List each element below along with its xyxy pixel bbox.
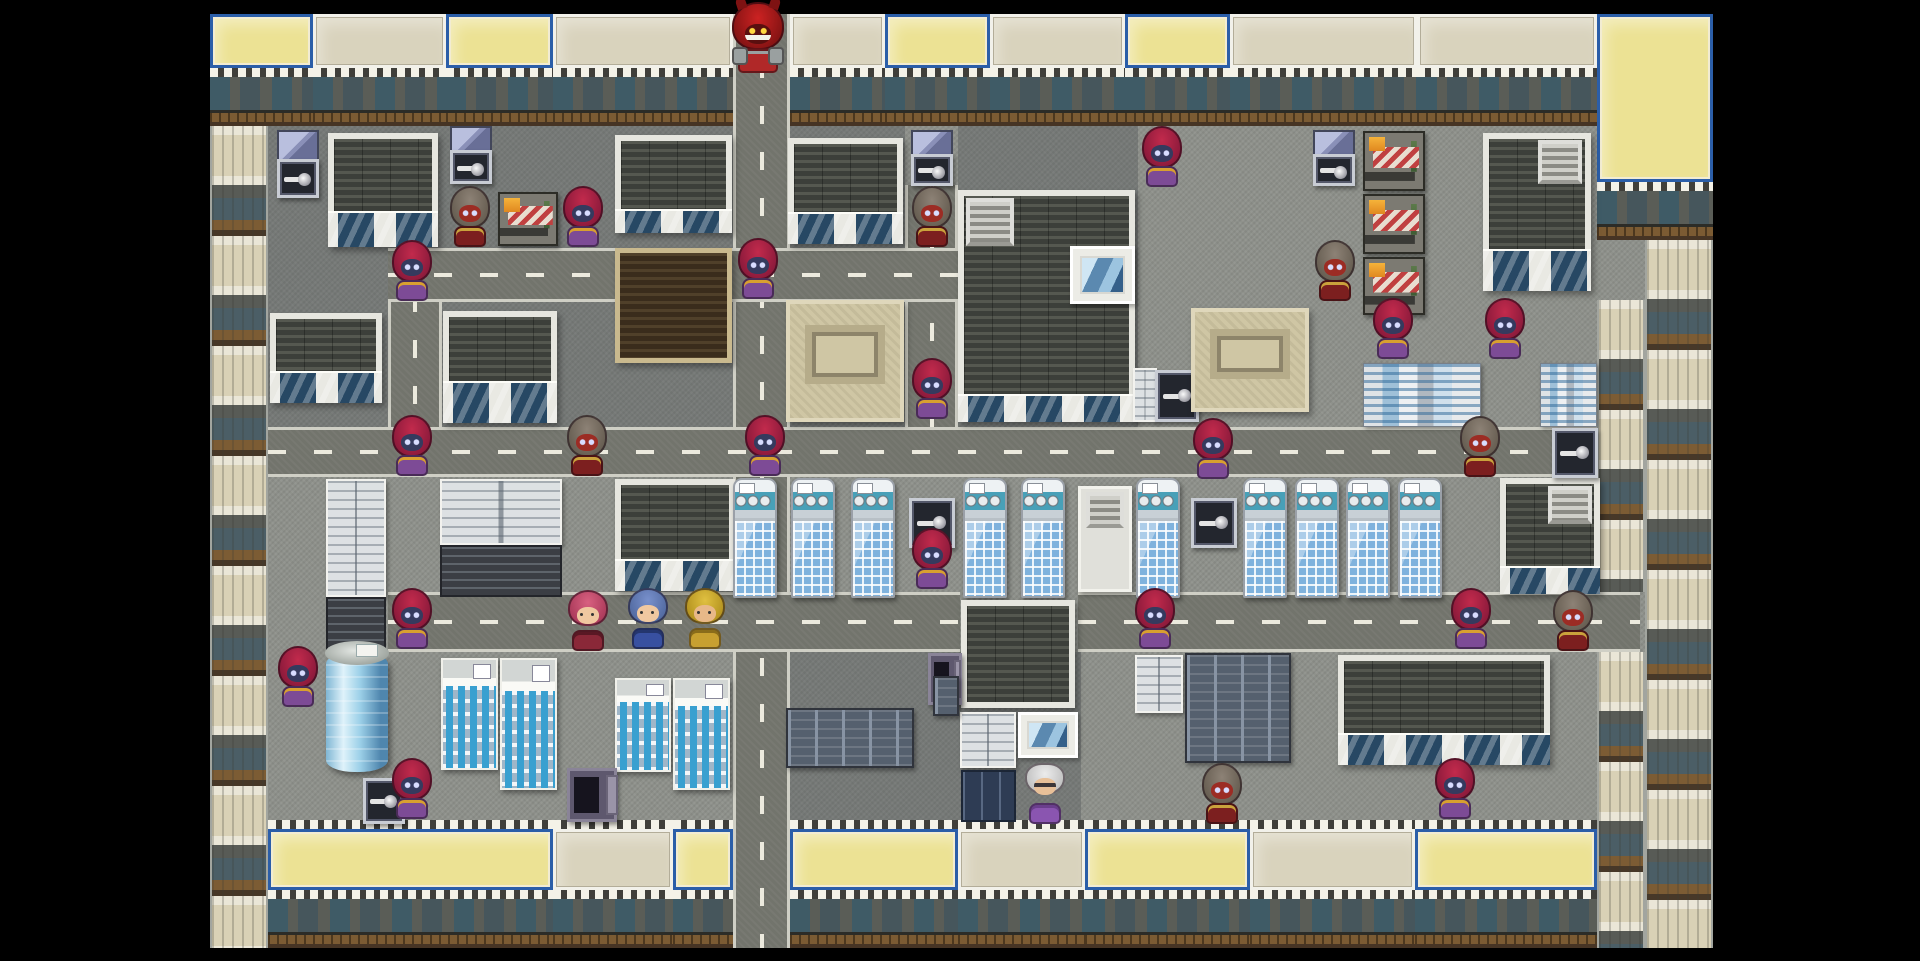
- building-facade-column: [210, 126, 268, 948]
- sprite-body: [1455, 628, 1487, 649]
- sprite-body: [567, 226, 599, 247]
- sprite-face: [401, 607, 423, 624]
- building-storefront: [1597, 14, 1713, 240]
- building-storefront: [313, 14, 446, 126]
- prop-lockers: [1185, 653, 1291, 763]
- sprite-body: [1319, 280, 1351, 301]
- sprite-face: [921, 377, 943, 394]
- npc-red-hood[interactable]: [390, 240, 434, 302]
- sprite-body: [632, 628, 664, 649]
- prop-rack: [1021, 478, 1065, 598]
- sprite-face: [1144, 607, 1166, 624]
- window-band: [958, 394, 1135, 422]
- building-facade-column: [1645, 240, 1713, 948]
- npc-red-hood[interactable]: [561, 186, 605, 248]
- sprite-body: [916, 226, 948, 247]
- window-band: [615, 559, 735, 591]
- prop-rack: [1243, 478, 1287, 598]
- sprite-body: [454, 226, 486, 247]
- sprite-face: [1211, 782, 1233, 799]
- sprite-body: [916, 568, 948, 589]
- sprite-body: [396, 280, 428, 301]
- prop-rack: [851, 478, 895, 598]
- npc-red-hood[interactable]: [390, 758, 434, 820]
- building-storefront: [958, 820, 1085, 948]
- prop-stall: [1363, 194, 1425, 254]
- prop-safeglass: [450, 126, 492, 184]
- building-storefront: [885, 14, 990, 126]
- prop-safe: [1191, 498, 1237, 548]
- building-facade-column: [1597, 300, 1645, 592]
- sprite-face: [754, 434, 776, 451]
- npc-red-hood[interactable]: [1371, 298, 1415, 360]
- prop-rack: [791, 478, 835, 598]
- sprite-face: [745, 24, 771, 44]
- building-storefront: [210, 14, 313, 126]
- prop-safeglass: [277, 130, 319, 198]
- prop-roofdark: [615, 135, 732, 233]
- sprite-face: [1460, 607, 1482, 624]
- npc-hero-pink[interactable]: [566, 590, 610, 652]
- sprite-body: [749, 455, 781, 476]
- prop-roofdark: [961, 600, 1075, 708]
- sprite-face: [572, 205, 594, 222]
- prop-rack: [1346, 478, 1390, 598]
- road-dash-line: [388, 620, 960, 624]
- sprite-body: [572, 630, 604, 651]
- prop-monument: [1191, 308, 1309, 412]
- sprite-face: [747, 257, 769, 274]
- prop-cablight: [440, 479, 562, 545]
- npc-red-hood[interactable]: [1140, 126, 1184, 188]
- prop-safeglass: [911, 130, 953, 186]
- prop-minitower: [441, 658, 498, 770]
- prop-windowinset: [1070, 246, 1135, 304]
- sprite-body: [282, 686, 314, 707]
- building-storefront: [1417, 14, 1597, 126]
- building-storefront: [1230, 14, 1417, 126]
- prop-windowinset: [1018, 712, 1078, 758]
- prop-rack: [1295, 478, 1339, 598]
- sprite-face: [1034, 778, 1056, 795]
- sprite-body: [396, 628, 428, 649]
- npc-hero-blue[interactable]: [626, 588, 670, 650]
- building-storefront: [553, 14, 733, 126]
- sprite-face: [287, 665, 309, 682]
- prop-cabdark: [440, 545, 562, 597]
- prop-roofdark: [615, 479, 735, 591]
- sprite-face: [1151, 145, 1173, 162]
- prop-vent: [1548, 486, 1592, 524]
- sprite-face: [1324, 259, 1346, 276]
- prop-roofdark: [270, 313, 382, 403]
- prop-roofdark: [443, 311, 557, 423]
- prop-roofdark: [1338, 655, 1550, 765]
- sprite-face: [401, 777, 423, 794]
- prop-stall: [1363, 131, 1425, 191]
- prop-cylinder: [326, 652, 388, 772]
- building-storefront: [446, 14, 553, 126]
- sprite-face: [459, 205, 481, 222]
- prop-rack: [733, 478, 777, 598]
- sprite-body: [1489, 338, 1521, 359]
- building-storefront: [1415, 820, 1597, 948]
- sprite-face: [1444, 777, 1466, 794]
- prop-cablight: [960, 712, 1016, 768]
- sprite-body: [1377, 338, 1409, 359]
- sprite-face: [921, 205, 943, 222]
- prop-safeopen: [567, 768, 617, 822]
- prop-vent: [1086, 492, 1124, 528]
- sprite-body: [1206, 803, 1238, 824]
- sprite-body: [1146, 166, 1178, 187]
- sprite-body: [1439, 798, 1471, 819]
- npc-masked[interactable]: [1458, 416, 1502, 478]
- prop-safeglass: [1313, 130, 1355, 186]
- building-facade-column: [1597, 652, 1645, 948]
- npc-red-hood[interactable]: [910, 528, 954, 590]
- npc-masked[interactable]: [910, 186, 954, 248]
- npc-boss-demon[interactable]: [730, 2, 786, 74]
- sprite-body: [742, 278, 774, 299]
- prop-doorsdark: [961, 770, 1016, 822]
- sprite-face: [1202, 437, 1224, 454]
- npc-red-hood[interactable]: [390, 415, 434, 477]
- prop-cablight: [1133, 368, 1157, 422]
- npc-red-hood[interactable]: [1191, 418, 1235, 480]
- building-storefront: [790, 820, 958, 948]
- prop-cablight: [326, 479, 386, 597]
- window-band: [270, 371, 382, 403]
- sprite-body: [1139, 628, 1171, 649]
- prop-monument: [786, 300, 904, 422]
- npc-masked[interactable]: [1200, 763, 1244, 825]
- building-storefront: [673, 820, 733, 948]
- npc-red-hood[interactable]: [1133, 588, 1177, 650]
- prop-roofdark: [328, 133, 438, 247]
- window-band: [1483, 249, 1591, 291]
- prop-minitower: [500, 658, 557, 790]
- sprite-face: [401, 434, 423, 451]
- sprite-face: [401, 259, 423, 276]
- npc-red-hood[interactable]: [276, 646, 320, 708]
- prop-rack: [1398, 478, 1442, 598]
- sprite-face: [576, 434, 598, 451]
- sprite-body: [1197, 458, 1229, 479]
- npc-red-hood[interactable]: [1449, 588, 1493, 650]
- npc-masked[interactable]: [448, 186, 492, 248]
- prop-stall: [498, 192, 558, 246]
- npc-red-hood[interactable]: [1483, 298, 1527, 360]
- window-band: [615, 209, 732, 233]
- building-storefront: [268, 820, 553, 948]
- npc-red-hood[interactable]: [743, 415, 787, 477]
- sprite-face: [1562, 609, 1584, 626]
- npc-old-man[interactable]: [1023, 763, 1067, 825]
- prop-safe: [1552, 428, 1598, 478]
- npc-hero-gold[interactable]: [683, 588, 727, 650]
- npc-red-hood[interactable]: [390, 588, 434, 650]
- prop-rack: [1136, 478, 1180, 598]
- building-storefront: [1125, 14, 1230, 126]
- prop-cablight: [1135, 655, 1183, 713]
- prop-minitower: [615, 678, 671, 772]
- road: [388, 592, 960, 652]
- prop-roofbrown: [615, 248, 732, 363]
- sprite-body: [1557, 630, 1589, 651]
- window-band: [443, 381, 557, 423]
- prop-rack: [963, 478, 1007, 598]
- sprite-body: [689, 628, 721, 649]
- sprite-body: [396, 455, 428, 476]
- building-storefront: [1085, 820, 1250, 948]
- sprite-face: [637, 605, 659, 622]
- npc-red-hood[interactable]: [910, 358, 954, 420]
- prop-minicity: [1540, 363, 1597, 427]
- npc-masked[interactable]: [1313, 240, 1357, 302]
- npc-red-hood[interactable]: [736, 238, 780, 300]
- sprite-body: [571, 455, 603, 476]
- prop-vent: [966, 198, 1014, 246]
- building-storefront: [553, 820, 673, 948]
- npc-red-hood[interactable]: [1433, 758, 1477, 820]
- building-storefront: [1250, 820, 1415, 948]
- sprite-face: [921, 547, 943, 564]
- game-screen[interactable]: [0, 0, 1920, 961]
- sprite-body: [396, 798, 428, 819]
- npc-masked[interactable]: [1551, 590, 1595, 652]
- sprite-face: [1382, 317, 1404, 334]
- sprite-face: [1494, 317, 1516, 334]
- sprite-face: [577, 607, 599, 624]
- prop-roofdark: [788, 138, 903, 244]
- sprite-body: [916, 398, 948, 419]
- prop-lockers: [786, 708, 914, 768]
- prop-vent: [1538, 140, 1582, 184]
- building-storefront: [990, 14, 1125, 126]
- prop-lockers: [933, 676, 959, 716]
- sprite-face: [694, 605, 716, 622]
- sprite-face: [1469, 435, 1491, 452]
- sprite-body: [738, 49, 778, 73]
- building-storefront: [790, 14, 885, 126]
- window-band: [788, 212, 903, 244]
- sprite-body: [1029, 803, 1061, 824]
- sprite-body: [1464, 456, 1496, 477]
- npc-masked[interactable]: [565, 415, 609, 477]
- prop-minitower: [673, 678, 730, 790]
